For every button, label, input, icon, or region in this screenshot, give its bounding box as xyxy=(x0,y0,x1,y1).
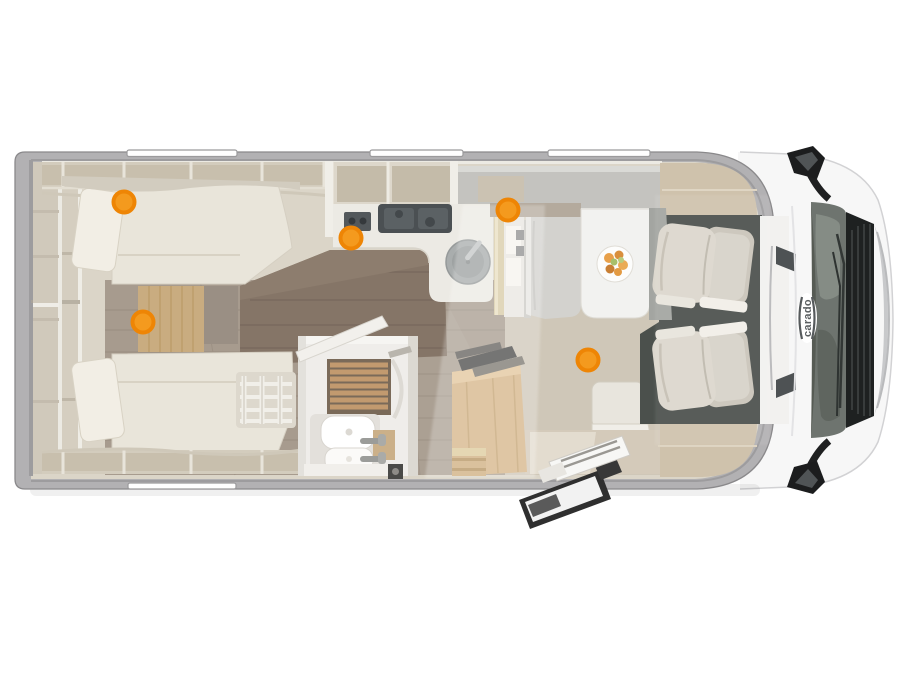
svg-text:carado: carado xyxy=(802,299,814,337)
